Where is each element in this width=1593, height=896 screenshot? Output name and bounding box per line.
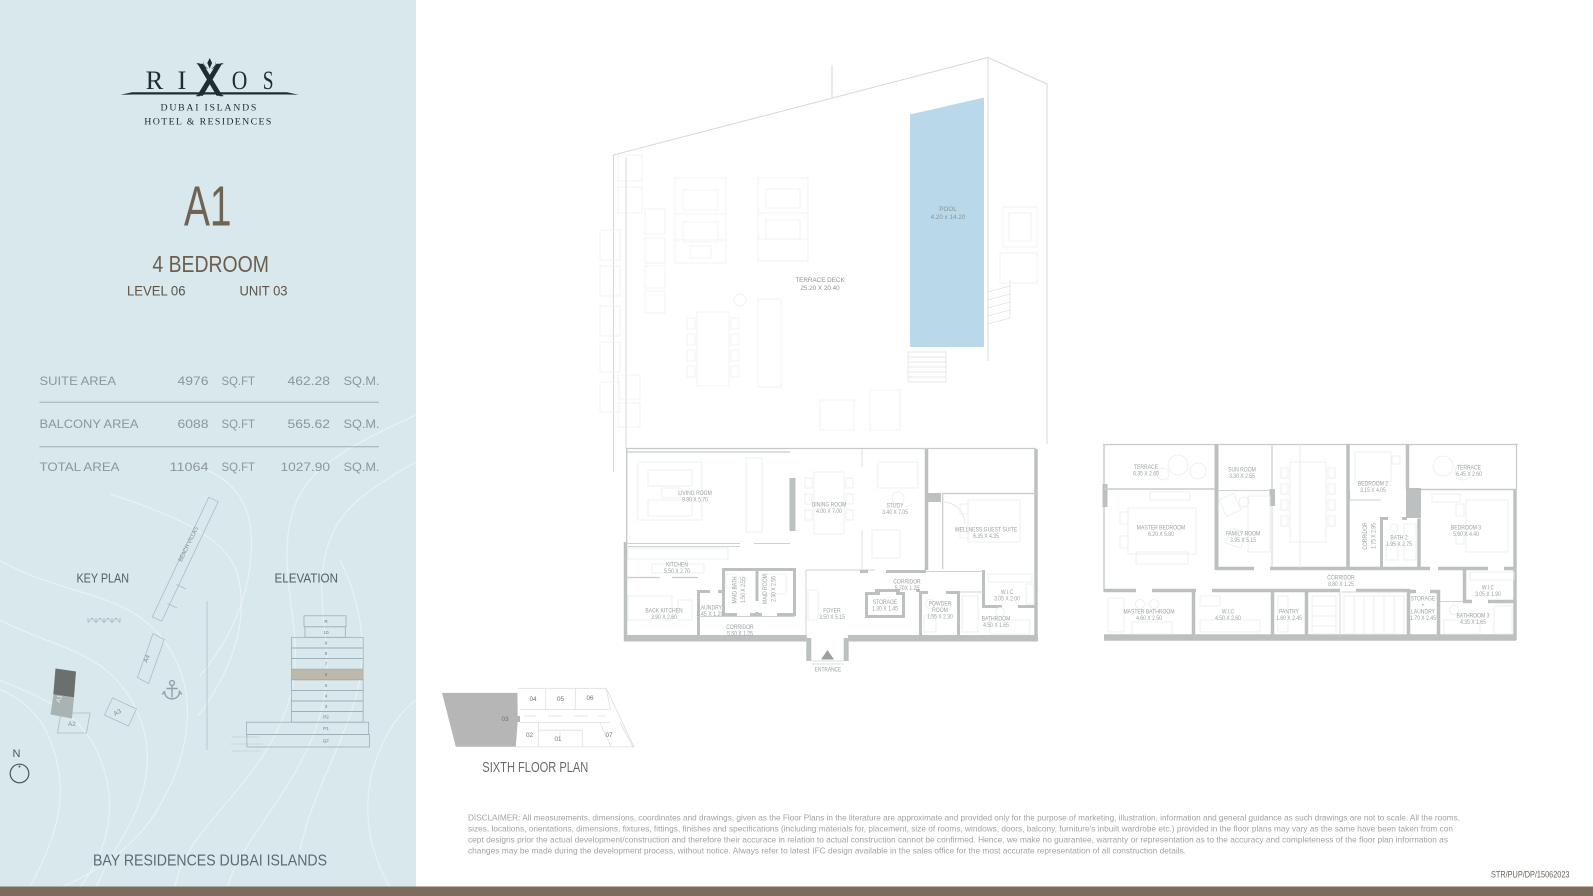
svg-text:5: 5 <box>325 683 328 688</box>
svg-text:1.75 X 2.95: 1.75 X 2.95 <box>1371 523 1378 549</box>
svg-text:4976: 4976 <box>178 374 209 388</box>
svg-text:1.45 X 1.20: 1.45 X 1.20 <box>696 611 724 618</box>
svg-text:3.05 X 1.90: 3.05 X 1.90 <box>1475 591 1501 598</box>
svg-text:3: 3 <box>325 704 328 709</box>
svg-text:03: 03 <box>501 716 509 723</box>
svg-text:sizes, locations, orientations: sizes, locations, orientations, dimensio… <box>468 825 1453 834</box>
svg-text:4.60 X 2.50: 4.60 X 2.50 <box>1136 615 1162 622</box>
svg-text:7: 7 <box>325 662 328 667</box>
svg-text:HOTEL & RESIDENCES: HOTEL & RESIDENCES <box>144 117 272 128</box>
svg-text:4.50 X 2.60: 4.50 X 2.60 <box>1215 615 1241 622</box>
svg-text:5.50 X 2.70: 5.50 X 2.70 <box>664 568 690 575</box>
svg-text:STR/PUP/DP/15062023: STR/PUP/DP/15062023 <box>1491 870 1570 881</box>
svg-text:11064: 11064 <box>170 460 209 474</box>
svg-text:DISCLAIMER: All measurements,: DISCLAIMER: All measurements, dimensions… <box>468 814 1460 823</box>
svg-text:TOTAL AREA: TOTAL AREA <box>40 460 121 474</box>
svg-text:02: 02 <box>526 732 534 739</box>
svg-text:3.50 X 5.15: 3.50 X 5.15 <box>819 614 845 621</box>
svg-text:01: 01 <box>554 736 562 743</box>
svg-text:565.62: 565.62 <box>288 417 331 431</box>
svg-text:4: 4 <box>325 693 328 698</box>
svg-text:3.95 X 5.15: 3.95 X 5.15 <box>1230 537 1256 544</box>
svg-text:SQ.M.: SQ.M. <box>344 374 380 388</box>
svg-text:3.40 X 7.05: 3.40 X 7.05 <box>882 509 908 516</box>
svg-text:1027.90: 1027.90 <box>281 460 331 474</box>
svg-text:SQ.FT: SQ.FT <box>222 374 256 388</box>
svg-text:6088: 6088 <box>178 417 209 431</box>
svg-text:6.45 X 2.60: 6.45 X 2.60 <box>1456 471 1482 478</box>
svg-text:10: 10 <box>323 630 329 635</box>
svg-text:8.80 X 1.25: 8.80 X 1.25 <box>1328 581 1354 588</box>
svg-text:1.55 X 2.30: 1.55 X 2.30 <box>927 614 953 621</box>
svg-text:LEVEL 06: LEVEL 06 <box>127 284 186 299</box>
svg-text:ENTRANCE: ENTRANCE <box>815 667 842 674</box>
svg-text:O: O <box>232 65 248 95</box>
svg-text:TERRACE DECK: TERRACE DECK <box>795 277 845 284</box>
svg-text:8: 8 <box>325 651 328 656</box>
svg-text:CORRIDOR: CORRIDOR <box>1362 522 1369 550</box>
svg-text:POOL: POOL <box>939 206 957 213</box>
svg-text:9.90 X 5.70: 9.90 X 5.70 <box>682 496 708 503</box>
svg-text:6.35 X 2.60: 6.35 X 2.60 <box>1133 471 1159 478</box>
svg-text:462.28: 462.28 <box>288 374 331 388</box>
svg-text:S: S <box>263 65 274 95</box>
svg-text:3.05 X 2.00: 3.05 X 2.00 <box>994 596 1020 603</box>
svg-text:5.60 X 4.40: 5.60 X 4.40 <box>1453 531 1479 538</box>
svg-text:3.15 X 4.05: 3.15 X 4.05 <box>1360 487 1386 494</box>
svg-text:4.00 X 7.00: 4.00 X 7.00 <box>816 508 842 515</box>
svg-text:A1: A1 <box>184 175 232 238</box>
svg-text:4.20 x 14.20: 4.20 x 14.20 <box>931 214 966 221</box>
svg-text:04: 04 <box>529 696 537 703</box>
svg-text:3.30 X 2.55: 3.30 X 2.55 <box>1229 473 1255 480</box>
svg-text:25.20 X 20.40: 25.20 X 20.40 <box>800 285 840 292</box>
svg-text:4.50 X 1.65: 4.50 X 1.65 <box>983 622 1009 629</box>
svg-text:P1: P1 <box>323 726 329 731</box>
svg-text:SIXTH FLOOR PLAN: SIXTH FLOOR PLAN <box>482 760 588 776</box>
svg-text:BALCONY AREA: BALCONY AREA <box>40 417 140 431</box>
svg-text:ELEVATION: ELEVATION <box>275 571 339 586</box>
svg-text:1.95 X 2.75: 1.95 X 2.75 <box>1386 541 1412 548</box>
svg-text:R: R <box>146 65 164 95</box>
svg-text:A2: A2 <box>68 721 76 728</box>
svg-text:9: 9 <box>325 641 328 646</box>
svg-text:4.35 X 1.65: 4.35 X 1.65 <box>1460 619 1486 626</box>
svg-text:changes may be made during the: changes may be made during the developme… <box>468 847 1186 856</box>
svg-text:3.90 X 2.60: 3.90 X 2.60 <box>651 614 677 621</box>
svg-text:6.35 X 4.35: 6.35 X 4.35 <box>973 533 999 540</box>
svg-text:SUITE AREA: SUITE AREA <box>40 374 117 388</box>
svg-text:6.20 X 5.80: 6.20 X 5.80 <box>1148 531 1174 538</box>
svg-text:N: N <box>13 748 21 760</box>
svg-text:5.50 X 1.25: 5.50 X 1.25 <box>727 631 753 638</box>
svg-text:DUBAI ISLANDS: DUBAI ISLANDS <box>161 103 259 114</box>
svg-text:05: 05 <box>557 696 565 703</box>
svg-text:1.60 X 2.45: 1.60 X 2.45 <box>1276 615 1302 622</box>
svg-text:1.50 X 2.55: 1.50 X 2.55 <box>740 577 747 603</box>
svg-text:P2: P2 <box>323 715 329 720</box>
svg-text:6: 6 <box>325 672 328 677</box>
svg-text:2.30 X 2.55: 2.30 X 2.55 <box>771 576 778 602</box>
svg-text:5.70X 1.25: 5.70X 1.25 <box>895 585 920 592</box>
svg-text:SQ.M.: SQ.M. <box>344 417 380 431</box>
svg-text:cept designs prior the actual: cept designs prior the actual developmen… <box>468 836 1448 845</box>
svg-text:MAID ROOM: MAID ROOM <box>762 574 769 604</box>
svg-text:1.70 X 2.45: 1.70 X 2.45 <box>1410 615 1436 622</box>
svg-text:UNIT 03: UNIT 03 <box>240 284 288 299</box>
svg-text:BAY RESIDENCES DUBAI ISLANDS: BAY RESIDENCES DUBAI ISLANDS <box>93 853 327 870</box>
svg-text:06: 06 <box>586 695 594 702</box>
svg-text:07: 07 <box>605 732 613 739</box>
svg-text:KEY PLAN: KEY PLAN <box>77 571 130 586</box>
svg-text:MAID BATH: MAID BATH <box>732 576 739 603</box>
svg-text:I: I <box>178 65 187 95</box>
svg-text:SQ.M.: SQ.M. <box>344 460 380 474</box>
svg-text:SQ.FT: SQ.FT <box>222 417 256 431</box>
svg-text:SQ.FT: SQ.FT <box>222 460 256 474</box>
svg-text:GF: GF <box>323 739 330 744</box>
svg-text:1.30 X 1.45: 1.30 X 1.45 <box>872 606 898 613</box>
svg-text:4 BEDROOM: 4 BEDROOM <box>152 251 269 277</box>
